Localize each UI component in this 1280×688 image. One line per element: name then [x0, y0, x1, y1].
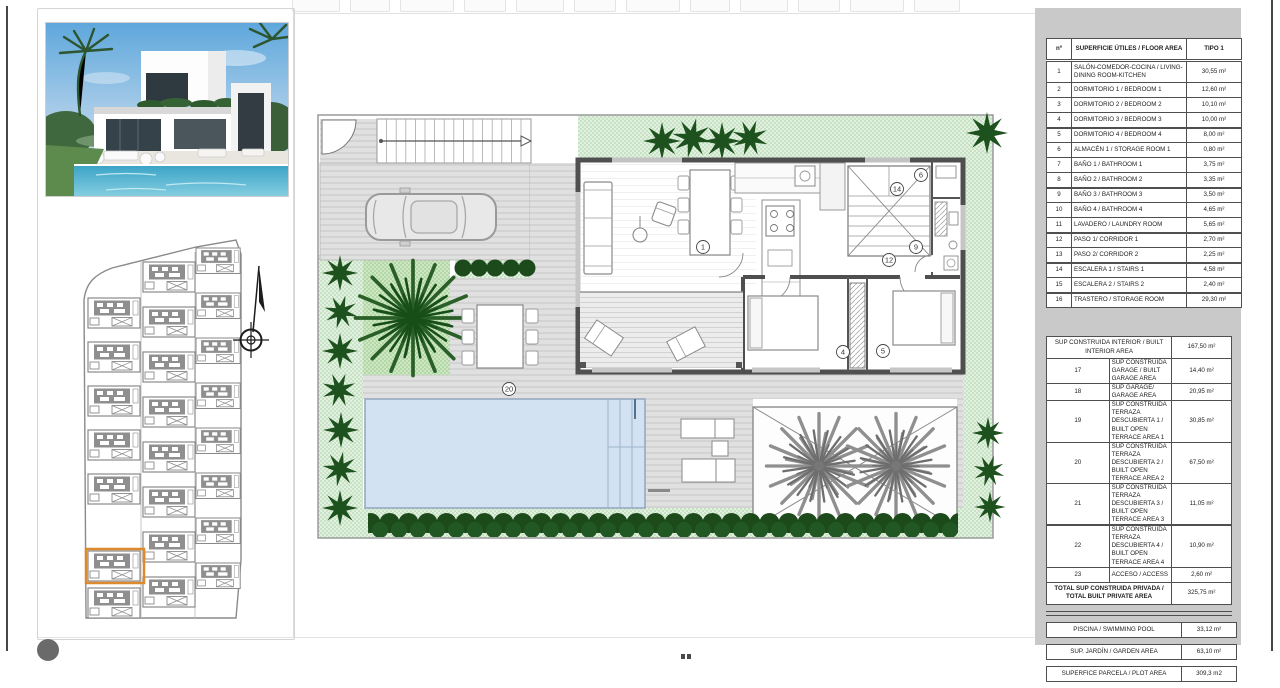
table-row: 13 PASO 2/ CORRIDOR 2 2,25 m²	[1047, 248, 1242, 263]
row-value: 2,60 m²	[1172, 567, 1232, 582]
room-label: 6	[919, 171, 923, 180]
table-row: 14 ESCALERA 1 / STAIRS 1 4,58 m²	[1047, 263, 1242, 278]
row-name: DORMITORIO 1 / BEDROOM 1	[1072, 83, 1187, 98]
table-row: 22 SUP CONSTRUIDA TERRAZA DESCUBIERTA 4 …	[1047, 525, 1232, 567]
row-value: 33,12 m²	[1182, 622, 1237, 637]
palm-tree-icon	[356, 261, 471, 376]
row-value: 20,95 m²	[1172, 384, 1232, 401]
row-number: 5	[1047, 128, 1072, 143]
row-number: 17	[1047, 359, 1110, 384]
row-name: SUP CONSTRUIDA GARAGE / BUILT GARAGE ARE…	[1109, 359, 1172, 384]
table-row: 2 DORMITORIO 1 / BEDROOM 1 12,60 m²	[1047, 83, 1242, 98]
row-name: SUP GARAGE/ GARAGE AREA	[1109, 384, 1172, 401]
bed	[893, 291, 955, 345]
row-number: 22	[1047, 525, 1110, 567]
row-value: 3,35 m²	[1187, 173, 1242, 188]
row-value: 11,05 m²	[1172, 483, 1232, 525]
table-row: 19 SUP CONSTRUIDA TERRAZA DESCUBIERTA 1 …	[1047, 401, 1232, 442]
row-name: ESCALERA 1 / STAIRS 1	[1072, 263, 1187, 278]
table-row: 9 BAÑO 3 / BATHROOM 3 3,50 m²	[1047, 188, 1242, 203]
hedge-row-bottom	[368, 509, 958, 537]
outdoor-dining-table	[462, 305, 538, 368]
table-row: 7 BAÑO 1 / BATHROOM 1 3,75 m²	[1047, 158, 1242, 173]
row-number: 2	[1047, 83, 1072, 98]
table-row: 1 SALÓN-COMEDOR-COCINA / LIVING-DINING R…	[1047, 61, 1242, 83]
hedge-row-small	[455, 260, 536, 277]
table-row: 21 SUP CONSTRUIDA TERRAZA DESCUBIERTA 3 …	[1047, 483, 1232, 525]
row-value: 8,00 m²	[1187, 128, 1242, 143]
garden-strip-top	[578, 115, 993, 162]
room-label: 4	[841, 348, 845, 357]
row-number: 4	[1047, 113, 1072, 128]
table-row: 16 TRASTERO / STORAGE ROOM 29,30 m²	[1047, 293, 1242, 308]
extra-area-table: PISCINA / SWIMMING POOL 33,12 m²	[1046, 622, 1237, 638]
row-name: BAÑO 4 / BATHROOM 4	[1072, 203, 1187, 218]
room-label: 20	[505, 385, 513, 394]
row-value: 30,85 m²	[1172, 401, 1232, 442]
table-row: 23 ACCESO / ACCESS 2,60 m²	[1047, 567, 1232, 582]
row-name: SUP CONSTRUIDA TERRAZA DESCUBIERTA 2 / B…	[1109, 442, 1172, 483]
row-name: ESCALERA 2 / STAIRS 2	[1072, 278, 1187, 293]
row-name: SALÓN-COMEDOR-COCINA / LIVING-DINING ROO…	[1072, 61, 1187, 83]
row-number: 10	[1047, 203, 1072, 218]
table-row: 20 SUP CONSTRUIDA TERRAZA DESCUBIERTA 2 …	[1047, 442, 1232, 483]
row-value: 309,3 m2	[1182, 666, 1237, 681]
row-name: SUPERFICE PARCELA / PLOT AREA	[1047, 666, 1182, 681]
gray-palm-icon	[844, 414, 949, 519]
logo-mark	[37, 639, 59, 661]
architectural-plan-sheet: { "page": { "panel_gray": "#c9c9c9", "ac…	[0, 0, 1280, 651]
row-value: 4,58 m²	[1187, 263, 1242, 278]
extra-area-table: SUPERFICE PARCELA / PLOT AREA 309,3 m2	[1046, 666, 1237, 682]
row-name: PASO 2/ CORRIDOR 2	[1072, 248, 1187, 263]
row-name: SUP CONSTRUIDA TERRAZA DESCUBIERTA 3 / B…	[1109, 483, 1172, 525]
row-value: 3,50 m²	[1187, 188, 1242, 203]
row-name: BAÑO 2 / BATHROOM 2	[1072, 173, 1187, 188]
row-value: 2,70 m²	[1187, 233, 1242, 248]
row-name: ALMACÉN 1 / STORAGE ROOM 1	[1072, 143, 1187, 158]
row-value: 30,55 m²	[1187, 61, 1242, 83]
row-value: 4,65 m²	[1187, 203, 1242, 218]
area-summary-panel: nº SUPERFICIE ÚTILES / FLOOR AREA TIPO 1…	[1035, 8, 1241, 645]
table-row: 5 DORMITORIO 4 / BEDROOM 4 8,00 m²	[1047, 128, 1242, 143]
row-name: SUP CONSTRUIDA TERRAZA DESCUBIERTA 4 / B…	[1109, 525, 1172, 567]
row-number: 13	[1047, 248, 1072, 263]
table-header-row: nº SUPERFICIE ÚTILES / FLOOR AREA TIPO 1	[1047, 39, 1242, 61]
wardrobe	[850, 283, 865, 368]
row-name: PISCINA / SWIMMING POOL	[1047, 622, 1182, 637]
row-name: DORMITORIO 3 / BEDROOM 3	[1072, 113, 1187, 128]
table-row: 6 ALMACÉN 1 / STORAGE ROOM 1 0,80 m²	[1047, 143, 1242, 158]
room-label: 12	[885, 256, 893, 265]
double-rule	[1046, 611, 1232, 616]
row-number: 3	[1047, 98, 1072, 113]
row-value: 2,40 m²	[1187, 278, 1242, 293]
row-value: 10,90 m²	[1172, 525, 1232, 567]
row-number: 1	[1047, 61, 1072, 83]
row-value: 2,25 m²	[1187, 248, 1242, 263]
table-row: 12 PASO 1/ CORRIDOR 1 2,70 m²	[1047, 233, 1242, 248]
row-value: 29,30 m²	[1187, 293, 1242, 308]
table-row: 3 DORMITORIO 2 / BEDROOM 2 10,10 m²	[1047, 98, 1242, 113]
table-row: 10 BAÑO 4 / BATHROOM 4 4,65 m²	[1047, 203, 1242, 218]
row-value: 14,40 m²	[1172, 359, 1232, 384]
house	[576, 158, 966, 373]
sheet-top-line	[293, 13, 1035, 14]
sofa	[584, 182, 612, 274]
row-number: 14	[1047, 263, 1072, 278]
header-num: nº	[1047, 39, 1072, 61]
row-number: 16	[1047, 293, 1072, 308]
total-row: TOTAL SUP CONSTRUIDA PRIVADA / TOTAL BUI…	[1047, 582, 1232, 604]
row-value: 63,10 m²	[1182, 644, 1237, 659]
row-number: 20	[1047, 442, 1110, 483]
bed	[748, 296, 818, 350]
row-number: 18	[1047, 384, 1110, 401]
row-name: TRASTERO / STORAGE ROOM	[1072, 293, 1187, 308]
row-number: 12	[1047, 233, 1072, 248]
room-label: 14	[893, 185, 901, 194]
row-value: 10,00 m²	[1187, 113, 1242, 128]
row-name: SUP. JARDÍN / GARDEN AREA	[1047, 644, 1182, 659]
row-name: PASO 1/ CORRIDOR 1	[1072, 233, 1187, 248]
row-name: SUP CONSTRUIDA TERRAZA DESCUBIERTA 1 / B…	[1109, 401, 1172, 442]
row-name: LAVADERO / LAUNDRY ROOM	[1072, 218, 1187, 233]
cutoff-header-text	[292, 0, 1032, 12]
row-number: 23	[1047, 567, 1110, 582]
table-row: 15 ESCALERA 2 / STAIRS 2 2,40 m²	[1047, 278, 1242, 293]
table-row: SUP. JARDÍN / GARDEN AREA 63,10 m²	[1047, 644, 1237, 659]
section-value: 167,50 m²	[1172, 337, 1232, 359]
row-name: BAÑO 1 / BATHROOM 1	[1072, 158, 1187, 173]
table-row: 4 DORMITORIO 3 / BEDROOM 3 10,00 m²	[1047, 113, 1242, 128]
row-number: 8	[1047, 173, 1072, 188]
covered-deck	[580, 292, 743, 368]
car-icon	[366, 188, 496, 246]
floor-area-table: nº SUPERFICIE ÚTILES / FLOOR AREA TIPO 1…	[1046, 38, 1242, 308]
table-row: 17 SUP CONSTRUIDA GARAGE / BUILT GARAGE …	[1047, 359, 1232, 384]
row-name: ACCESO / ACCESS	[1109, 567, 1172, 582]
table-row: 11 LAVADERO / LAUNDRY ROOM 5,65 m²	[1047, 218, 1242, 233]
section-name: SUP CONSTRUIDA INTERIOR / BUILT INTERIOR…	[1047, 337, 1172, 359]
floor-plan: 1 4 5 6 9 12 14 20	[316, 112, 1009, 538]
row-value: 10,10 m²	[1187, 98, 1242, 113]
villa-photo	[45, 22, 289, 197]
swimming-pool	[365, 399, 670, 508]
built-area-table: SUP CONSTRUIDA INTERIOR / BUILT INTERIOR…	[1046, 336, 1232, 605]
row-name: DORMITORIO 4 / BEDROOM 4	[1072, 128, 1187, 143]
built-interior-row: SUP CONSTRUIDA INTERIOR / BUILT INTERIOR…	[1047, 337, 1232, 359]
row-value: 12,60 m²	[1187, 83, 1242, 98]
area-table: nº SUPERFICIE ÚTILES / FLOOR AREA TIPO 1…	[1046, 38, 1232, 688]
header-value: TIPO 1	[1187, 39, 1242, 61]
room-label: 5	[881, 347, 885, 356]
row-number: 6	[1047, 143, 1072, 158]
table-row: 18 SUP GARAGE/ GARAGE AREA 20,95 m²	[1047, 384, 1232, 401]
room-label: 9	[914, 243, 918, 252]
extra-area-table: SUP. JARDÍN / GARDEN AREA 63,10 m²	[1046, 644, 1237, 660]
total-name: TOTAL SUP CONSTRUIDA PRIVADA / TOTAL BUI…	[1047, 582, 1172, 604]
row-name: DORMITORIO 2 / BEDROOM 2	[1072, 98, 1187, 113]
row-number: 19	[1047, 401, 1110, 442]
villa-photo-art	[46, 23, 288, 196]
row-value: 0,80 m²	[1187, 143, 1242, 158]
extra-area-rows: PISCINA / SWIMMING POOL 33,12 m² SUP. JA…	[1046, 622, 1232, 682]
room-label: 1	[701, 243, 705, 252]
shower	[935, 202, 947, 236]
table-row: SUPERFICE PARCELA / PLOT AREA 309,3 m2	[1047, 666, 1237, 681]
row-number: 7	[1047, 158, 1072, 173]
cutoff-footer-text	[681, 646, 693, 651]
header-name: SUPERFICIE ÚTILES / FLOOR AREA	[1072, 39, 1187, 61]
row-value: 5,65 m²	[1187, 218, 1242, 233]
row-number: 9	[1047, 188, 1072, 203]
row-number: 11	[1047, 218, 1072, 233]
row-number: 21	[1047, 483, 1110, 525]
exterior-stairs	[377, 119, 531, 163]
table-row: PISCINA / SWIMMING POOL 33,12 m²	[1047, 622, 1237, 637]
total-value: 325,75 m²	[1172, 582, 1232, 604]
row-value: 3,75 m²	[1187, 158, 1242, 173]
row-value: 67,50 m²	[1172, 442, 1232, 483]
row-number: 15	[1047, 278, 1072, 293]
table-row: 8 BAÑO 2 / BATHROOM 2 3,35 m²	[1047, 173, 1242, 188]
row-name: BAÑO 3 / BATHROOM 3	[1072, 188, 1187, 203]
